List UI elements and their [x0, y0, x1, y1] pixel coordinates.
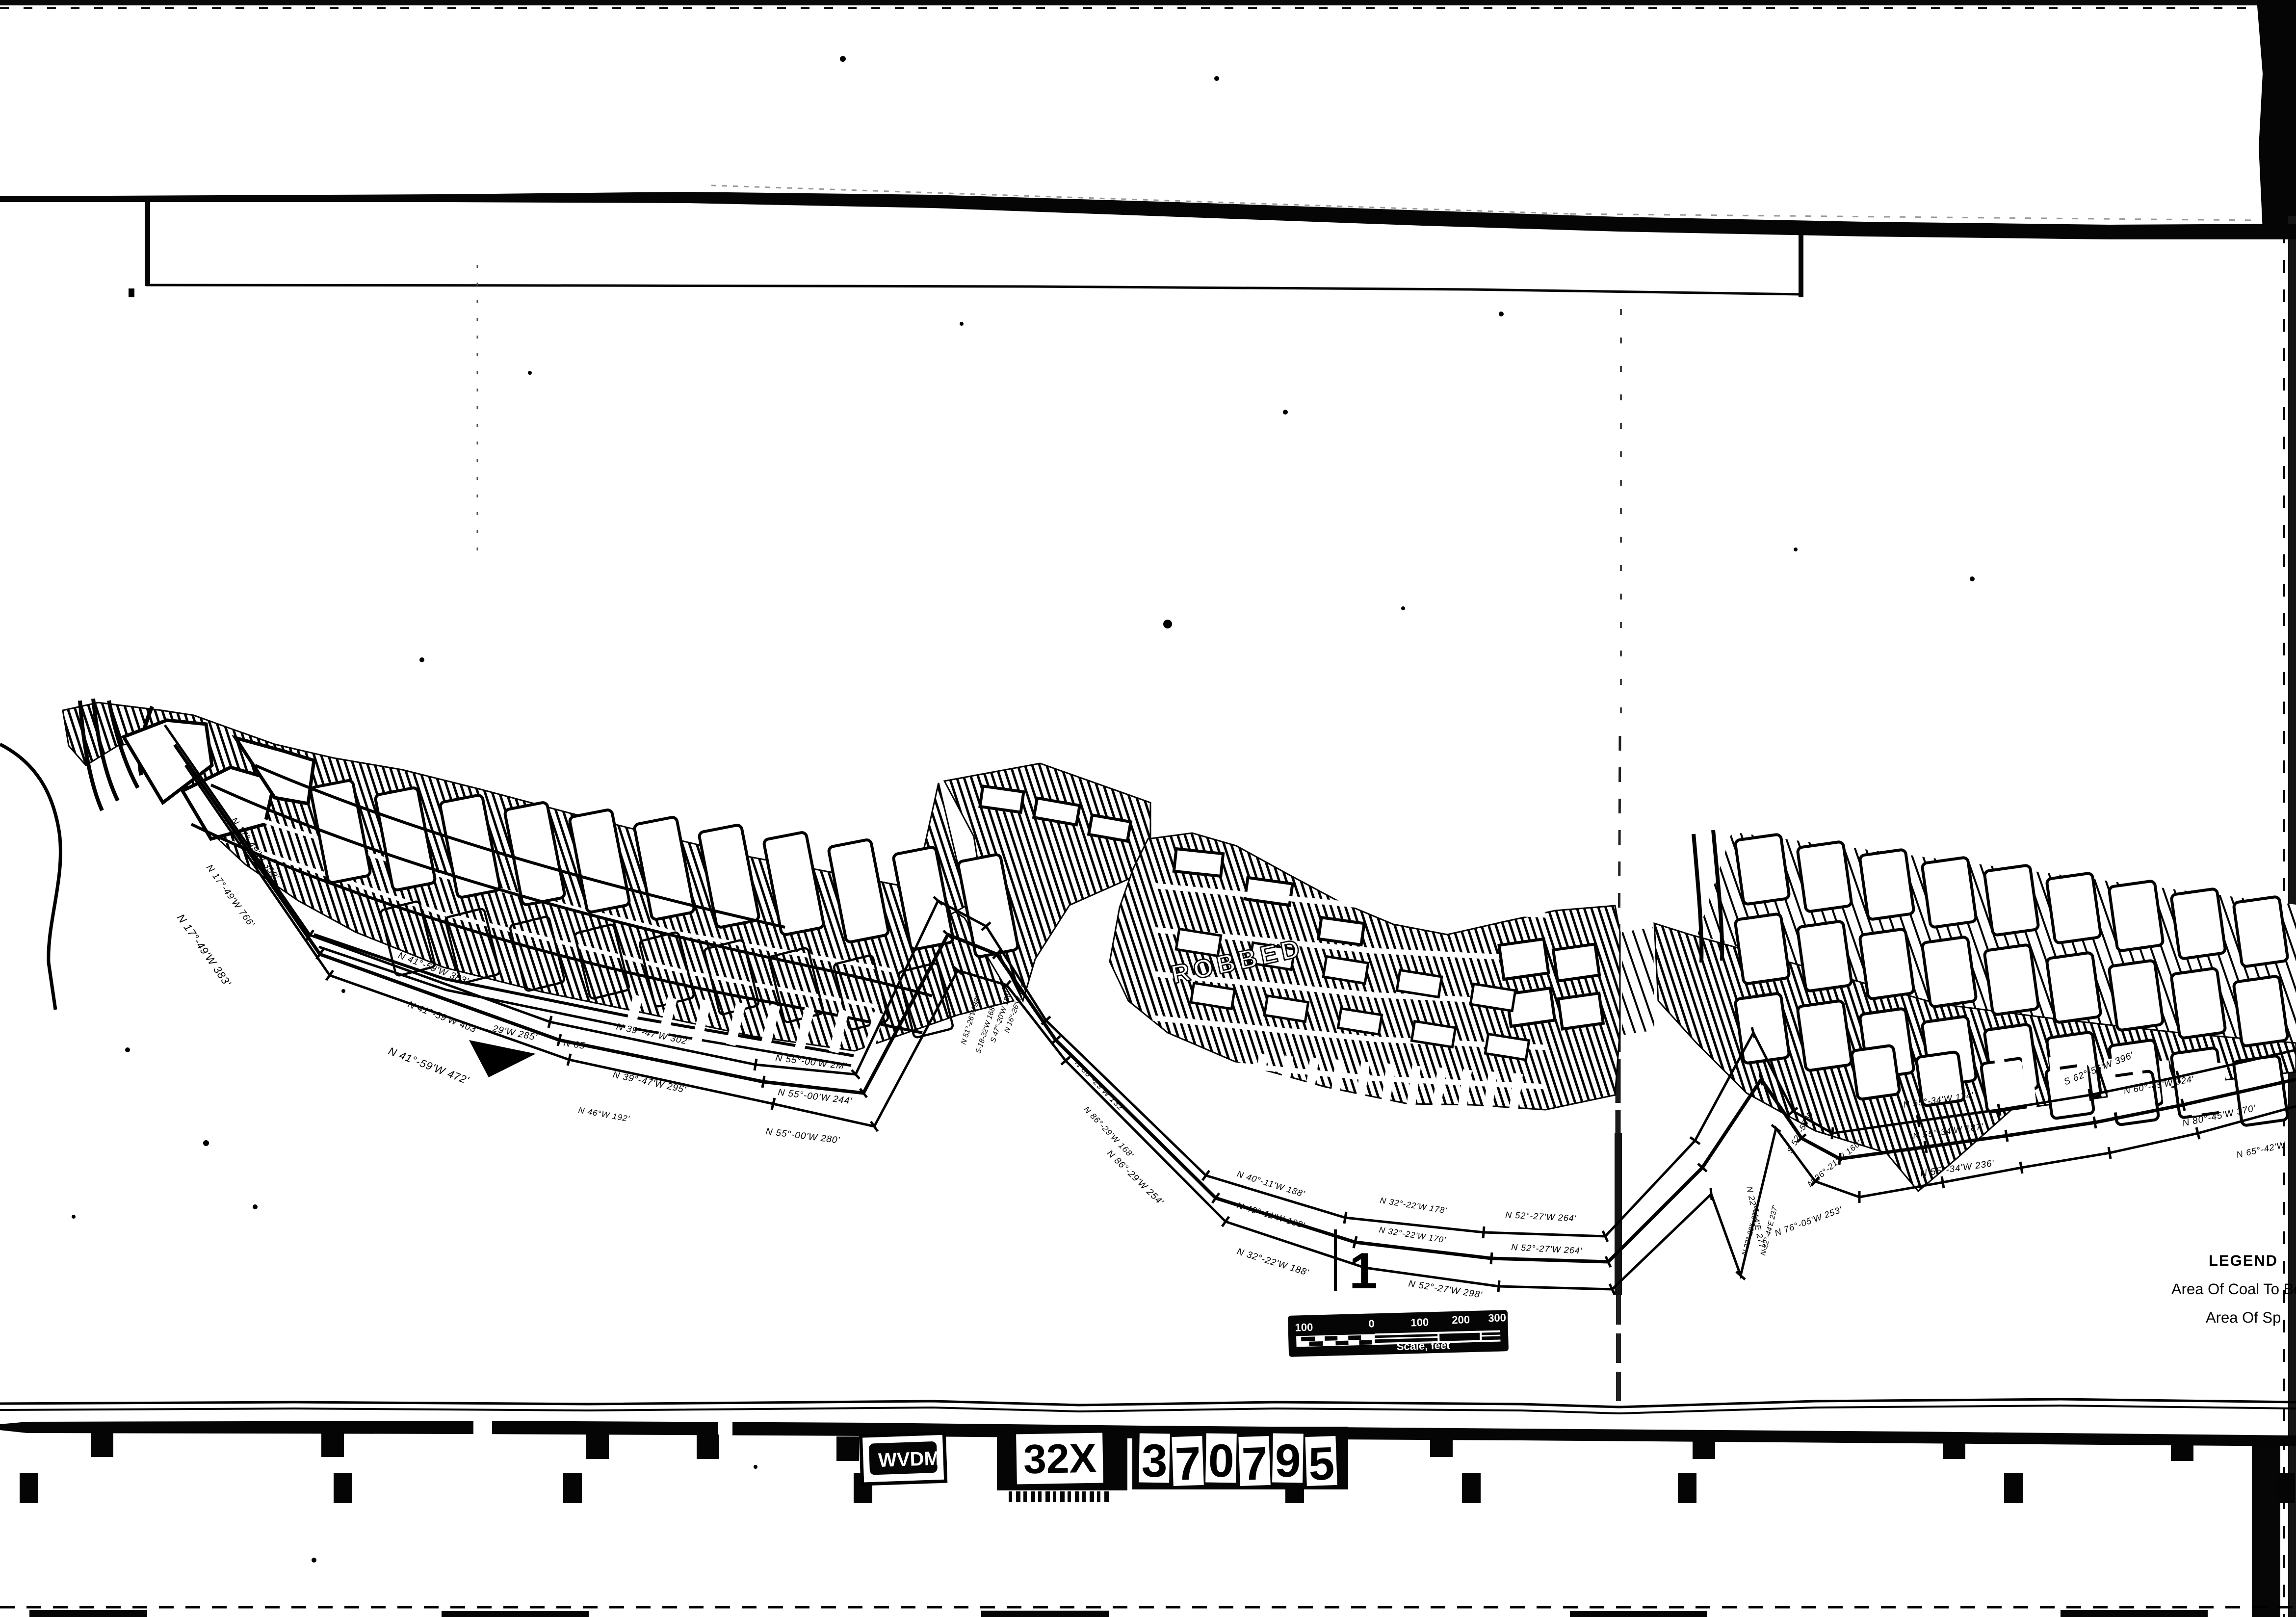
- svg-text:N 52°-27'W 264': N 52°-27'W 264': [1511, 1242, 1583, 1256]
- svg-text:N 39°-47'W 295': N 39°-47'W 295': [612, 1069, 687, 1095]
- svg-text:N 65°-42'W: N 65°-42'W: [2236, 1140, 2287, 1160]
- svg-text:Scale, feet: Scale, feet: [1396, 1339, 1450, 1353]
- svg-text:Area Of Coal To Be: Area Of Coal To Be: [2171, 1280, 2296, 1298]
- svg-text:32X: 32X: [1023, 1435, 1097, 1483]
- svg-text:100: 100: [1295, 1321, 1313, 1334]
- svg-text:9: 9: [1275, 1435, 1302, 1487]
- svg-text:N 17°-49'W 383': N 17°-49'W 383': [175, 912, 234, 989]
- svg-text:LEGEND: LEGEND: [2209, 1252, 2278, 1269]
- svg-text:200: 200: [1452, 1313, 1470, 1326]
- svg-text:N 76°-05'W 253': N 76°-05'W 253': [1774, 1204, 1844, 1238]
- svg-text:3: 3: [1141, 1435, 1168, 1487]
- svg-text:N 65: N 65: [563, 1038, 586, 1051]
- svg-text:N 86°-29'W 132': N 86°-29'W 132': [1073, 1059, 1126, 1114]
- svg-text:N 32°-22'W 178': N 32°-22'W 178': [1379, 1196, 1447, 1215]
- svg-text:N 55°-00'W 280': N 55°-00'W 280': [765, 1126, 840, 1146]
- svg-text:N 52°-27'W 264': N 52°-27'W 264': [1505, 1210, 1577, 1224]
- svg-text:1: 1: [1349, 1243, 1378, 1300]
- svg-text:N 32°-22'W 188': N 32°-22'W 188': [1236, 1247, 1310, 1278]
- svg-text:N 41°-59'W 403': N 41°-59'W 403': [406, 999, 480, 1036]
- svg-text:300: 300: [1488, 1311, 1506, 1324]
- svg-text:Area Of Sp: Area Of Sp: [2206, 1309, 2281, 1326]
- svg-text:N 46°W 192': N 46°W 192': [577, 1105, 630, 1123]
- svg-text:N 41°-59'W 472': N 41°-59'W 472': [387, 1044, 470, 1087]
- svg-text:N 40°-11'W 188': N 40°-11'W 188': [1236, 1200, 1306, 1230]
- svg-text:WVDM: WVDM: [878, 1448, 940, 1471]
- svg-text:5: 5: [1307, 1437, 1335, 1490]
- svg-text:N 86°-29'W 254': N 86°-29'W 254': [1105, 1148, 1166, 1207]
- svg-text:100: 100: [1410, 1316, 1429, 1329]
- svg-text:7: 7: [1174, 1437, 1202, 1490]
- svg-text:7: 7: [1241, 1437, 1269, 1490]
- svg-text:0: 0: [1368, 1317, 1375, 1330]
- svg-text:N 17°-49'W 766': N 17°-49'W 766': [204, 863, 257, 930]
- svg-text:0: 0: [1208, 1435, 1235, 1487]
